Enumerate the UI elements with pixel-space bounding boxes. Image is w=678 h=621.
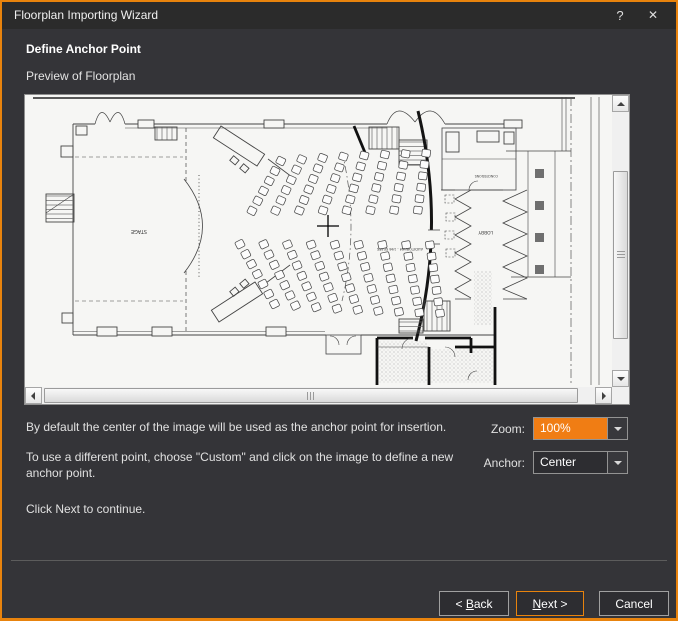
close-icon[interactable]: ✕ xyxy=(640,2,666,29)
floorplan-preview[interactable]: STAGE LOBBY CONCESSIONS AUDITORIUM - 196… xyxy=(24,94,630,405)
seating-rows xyxy=(235,149,445,317)
scroll-down-button[interactable] xyxy=(612,370,629,387)
help-icon[interactable]: ? xyxy=(608,2,632,29)
scroll-up-button[interactable] xyxy=(612,95,629,112)
instruction-custom-anchor: To use a different point, choose "Custom… xyxy=(26,449,488,481)
back-button[interactable]: < Back xyxy=(439,591,509,616)
floorplan-canvas[interactable]: STAGE LOBBY CONCESSIONS AUDITORIUM - 196… xyxy=(25,95,612,387)
horizontal-scrollbar[interactable] xyxy=(25,387,612,404)
anchor-dropdown[interactable]: Center xyxy=(533,451,628,474)
auditorium-label: AUDITORIUM - 196 SEATS xyxy=(376,247,423,251)
window-title: Floorplan Importing Wizard xyxy=(14,2,158,29)
stage-label: STAGE xyxy=(131,228,147,234)
scrollbar-corner xyxy=(612,387,629,404)
instruction-next: Click Next to continue. xyxy=(26,501,326,517)
footer-separator xyxy=(11,560,667,561)
floorplan-drawing xyxy=(33,97,599,385)
zoom-label: Zoom: xyxy=(422,422,525,436)
horizontal-scroll-thumb[interactable] xyxy=(44,388,578,403)
concessions-label: CONCESSIONS xyxy=(475,174,498,178)
floorplan-importing-wizard-dialog: Floorplan Importing Wizard ? ✕ Define An… xyxy=(0,0,678,621)
floorplan-svg: STAGE LOBBY CONCESSIONS AUDITORIUM - 196… xyxy=(25,95,612,387)
vertical-scroll-thumb[interactable] xyxy=(613,171,628,339)
next-button[interactable]: Next > xyxy=(516,591,584,616)
scroll-left-button[interactable] xyxy=(25,387,42,404)
vertical-scrollbar[interactable] xyxy=(612,95,629,387)
zoom-dropdown[interactable]: 100% xyxy=(533,417,628,440)
anchor-crosshair xyxy=(317,215,339,237)
lobby-label: LOBBY xyxy=(478,229,493,235)
anchor-label: Anchor: xyxy=(422,456,525,470)
preview-label: Preview of Floorplan xyxy=(26,69,135,83)
chevron-down-icon[interactable] xyxy=(607,452,627,473)
chevron-down-icon[interactable] xyxy=(607,418,627,439)
cancel-button[interactable]: Cancel xyxy=(599,591,669,616)
anchor-value: Center xyxy=(534,452,607,473)
zoom-value: 100% xyxy=(534,418,607,439)
page-title: Define Anchor Point xyxy=(26,42,141,56)
scroll-right-button[interactable] xyxy=(595,387,612,404)
title-bar[interactable]: Floorplan Importing Wizard ? ✕ xyxy=(2,2,676,29)
